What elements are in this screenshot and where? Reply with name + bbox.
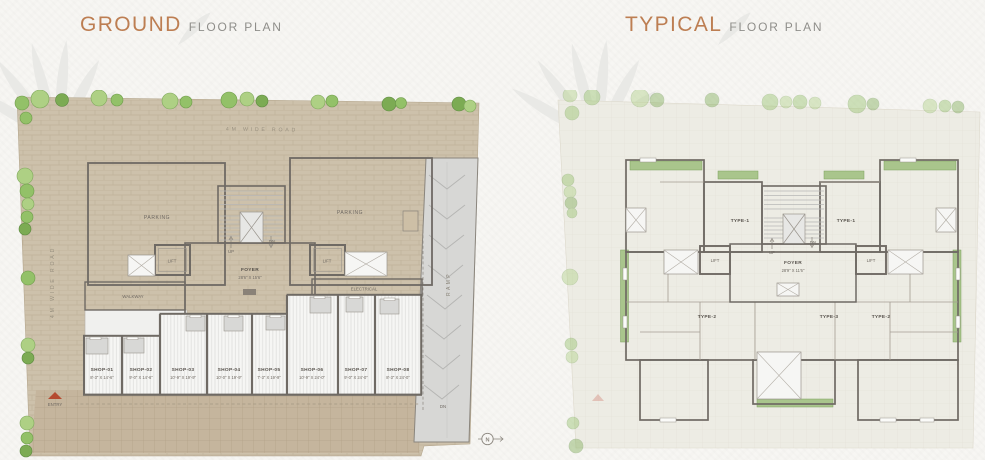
typical-title-main: TYPICAL <box>625 13 722 37</box>
electrical-label: ELECTRICAL <box>351 287 378 292</box>
svg-text:SHOP-03: SHOP-03 <box>172 367 195 373</box>
svg-text:SHOP-07: SHOP-07 <box>345 367 368 373</box>
unit-type1-right-label: TYPE-1 <box>837 218 856 224</box>
stair-up-label: UP <box>228 249 234 254</box>
ramp-label: RAMP <box>446 272 452 296</box>
lift-right-label: LIFT <box>323 259 332 264</box>
ground-title-main: GROUND <box>80 13 182 37</box>
svg-text:SHOP-08: SHOP-08 <box>387 367 410 373</box>
road-top-label: 4M WIDE ROAD <box>226 127 298 134</box>
ground-plan-title: GROUND FLOOR PLAN <box>80 13 283 37</box>
unit-type3-label: TYPE-3 <box>820 314 839 320</box>
lift-left-label: LIFT <box>168 259 177 264</box>
svg-text:SHOP-05: SHOP-05 <box>258 367 281 373</box>
foyer-label: FOYER <box>241 267 259 273</box>
floor-plan-sheet: GROUND FLOOR PLAN TYPICAL FLOOR PLAN <box>0 0 985 460</box>
svg-text:SHOP-01: SHOP-01 <box>91 367 114 373</box>
lift-left-label: LIFT <box>711 258 720 263</box>
road-left-label: 4M WIDE ROAD <box>50 246 56 318</box>
foyer-mat <box>243 289 256 295</box>
svg-text:SHOP-02: SHOP-02 <box>130 367 153 373</box>
svg-text:9'-0" X 14'-6": 9'-0" X 14'-6" <box>129 375 153 380</box>
typical-floor-plan: UP DN FOYER 28'9" X 11'6" LIFT LIFT <box>540 90 985 460</box>
foyer-label: FOYER <box>784 260 802 266</box>
svg-text:10'-0" X 19'-9": 10'-0" X 19'-9" <box>216 375 242 380</box>
walkway-label: WALKWAY <box>122 294 143 299</box>
svg-text:8'-3" X 14'-6": 8'-3" X 14'-6" <box>90 375 114 380</box>
unit-type2-left-label: TYPE-2 <box>698 314 717 320</box>
north-label: N <box>485 437 489 443</box>
unit-type1-left-label: TYPE-1 <box>731 218 750 224</box>
ramp-dn-label: DN <box>440 404 446 409</box>
foyer-dim: 28'9" X 11'6" <box>782 268 805 273</box>
svg-text:SHOP-04: SHOP-04 <box>218 367 241 373</box>
unit-type2-right-label: TYPE-2 <box>872 314 891 320</box>
svg-text:9'-0" X 24'-0": 9'-0" X 24'-0" <box>344 375 368 380</box>
parking-left-label: PARKING <box>144 215 170 221</box>
svg-text:SHOP-06: SHOP-06 <box>301 367 324 373</box>
front-paving <box>31 390 421 453</box>
light-well <box>757 352 801 399</box>
stair-up-label: UP <box>769 250 775 255</box>
entry-label: ENTRY <box>48 402 63 407</box>
lift-right-label: LIFT <box>867 258 876 263</box>
typical-title-sub: FLOOR PLAN <box>729 20 823 34</box>
svg-text:7'-3" X 19'-9": 7'-3" X 19'-9" <box>257 375 281 380</box>
svg-text:10'-9" X 19'-9": 10'-9" X 19'-9" <box>170 375 196 380</box>
typical-plan-title: TYPICAL FLOOR PLAN <box>625 13 823 37</box>
svg-text:10'-9" X 24'-0": 10'-9" X 24'-0" <box>299 375 325 380</box>
parking-right-label: PARKING <box>337 210 363 216</box>
planter-box <box>403 211 418 231</box>
svg-text:8'-3" X 24'-0": 8'-3" X 24'-0" <box>386 375 410 380</box>
north-compass-icon: N <box>478 433 503 444</box>
ground-title-sub: FLOOR PLAN <box>189 20 283 34</box>
ground-floor-plan: RAMP DN PARKING PARKING <box>0 90 520 460</box>
foyer-dim: 28'6" X 15'6" <box>238 275 262 280</box>
